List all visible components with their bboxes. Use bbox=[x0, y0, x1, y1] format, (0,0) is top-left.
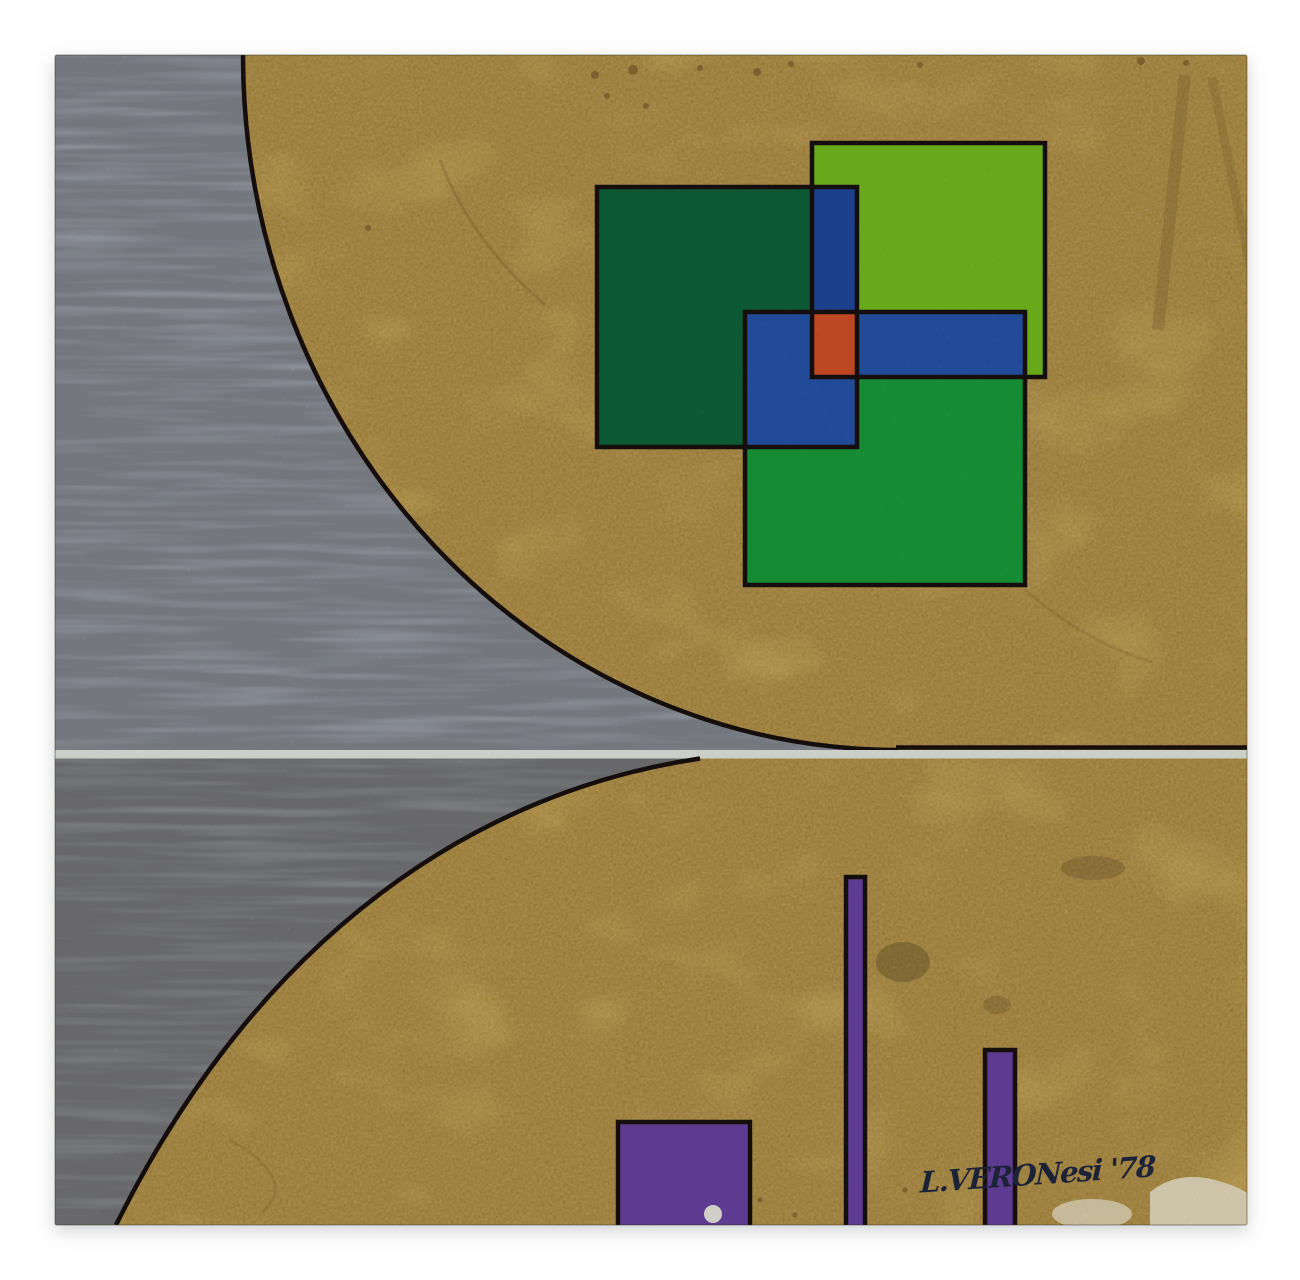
painting-photo: L.VERONesi '78 bbox=[0, 0, 1300, 1280]
canvas-grain-texture bbox=[55, 55, 1247, 1225]
photo-backdrop: L.VERONesi '78 bbox=[0, 0, 1300, 1280]
painting-panel: L.VERONesi '78 bbox=[55, 55, 1277, 1232]
